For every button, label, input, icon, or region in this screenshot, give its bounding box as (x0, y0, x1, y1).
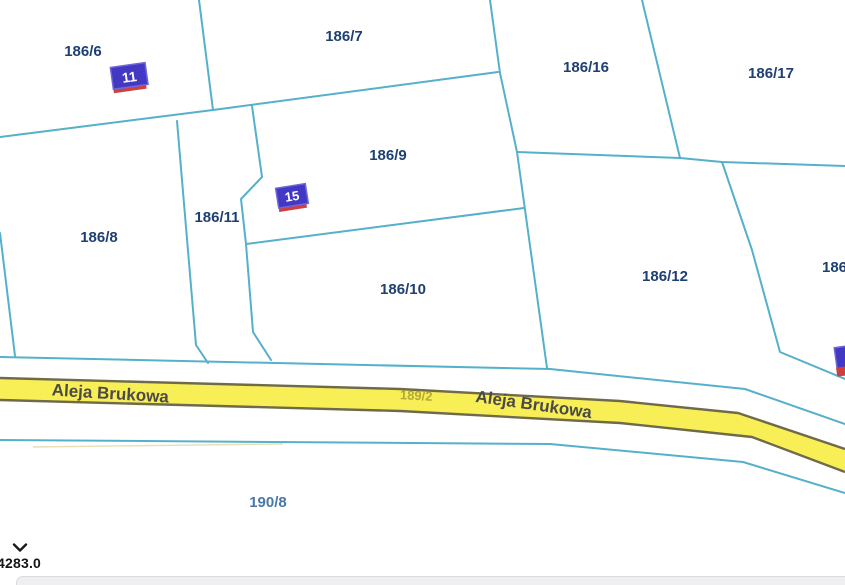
parcel-boundary-line (246, 208, 524, 244)
parcel-label-186-11: 186/11 (194, 209, 239, 226)
chevron-down-icon[interactable] (12, 540, 28, 550)
parcel-label-186-17: 186/17 (748, 65, 794, 82)
parcel-label-186-6: 186/6 (64, 43, 102, 60)
parcel-boundary-line (0, 72, 498, 137)
parcel-label-186-7: 186/7 (325, 28, 363, 45)
parcel-label-186-cut: 186 (822, 259, 845, 276)
parcel-label-186-16: 186/16 (563, 59, 609, 76)
cadastral-map[interactable]: 186/6 186/7 186/16 186/17 186/9 186/11 1… (0, 0, 845, 585)
parcel-boundary-line (642, 0, 680, 158)
building-marker-label: 15 (284, 188, 301, 205)
map-viewport[interactable]: 186/6 186/7 186/16 186/17 186/9 186/11 1… (0, 0, 845, 585)
faded-boundary-line (33, 444, 283, 447)
parcel-boundary-line (0, 233, 15, 356)
parcel-boundary-line (0, 440, 845, 493)
building-marker-edge[interactable] (833, 346, 845, 377)
parcel-boundary-line (490, 0, 547, 368)
parcel-label-190-8: 190/8 (249, 494, 287, 511)
parcel-boundary-line (199, 0, 213, 110)
building-marker-15[interactable]: 15 (276, 184, 309, 212)
parcel-label-186-10: 186/10 (380, 281, 426, 298)
building-marker-label: 11 (121, 68, 138, 86)
road-parcel-label-189-2: 189/2 (400, 387, 433, 404)
bottom-panel-edge[interactable] (16, 576, 845, 585)
parcel-boundary-line (517, 152, 845, 166)
parcel-boundary-line (241, 106, 271, 360)
parcel-boundary-line (177, 121, 208, 363)
parcel-label-186-9: 186/9 (369, 147, 407, 164)
building-marker-11[interactable]: 11 (110, 63, 148, 94)
coordinate-readout: 4283.0 (0, 555, 41, 571)
parcel-label-186-8: 186/8 (80, 229, 118, 246)
marker-box (834, 346, 845, 369)
parcel-label-186-12: 186/12 (642, 268, 688, 285)
